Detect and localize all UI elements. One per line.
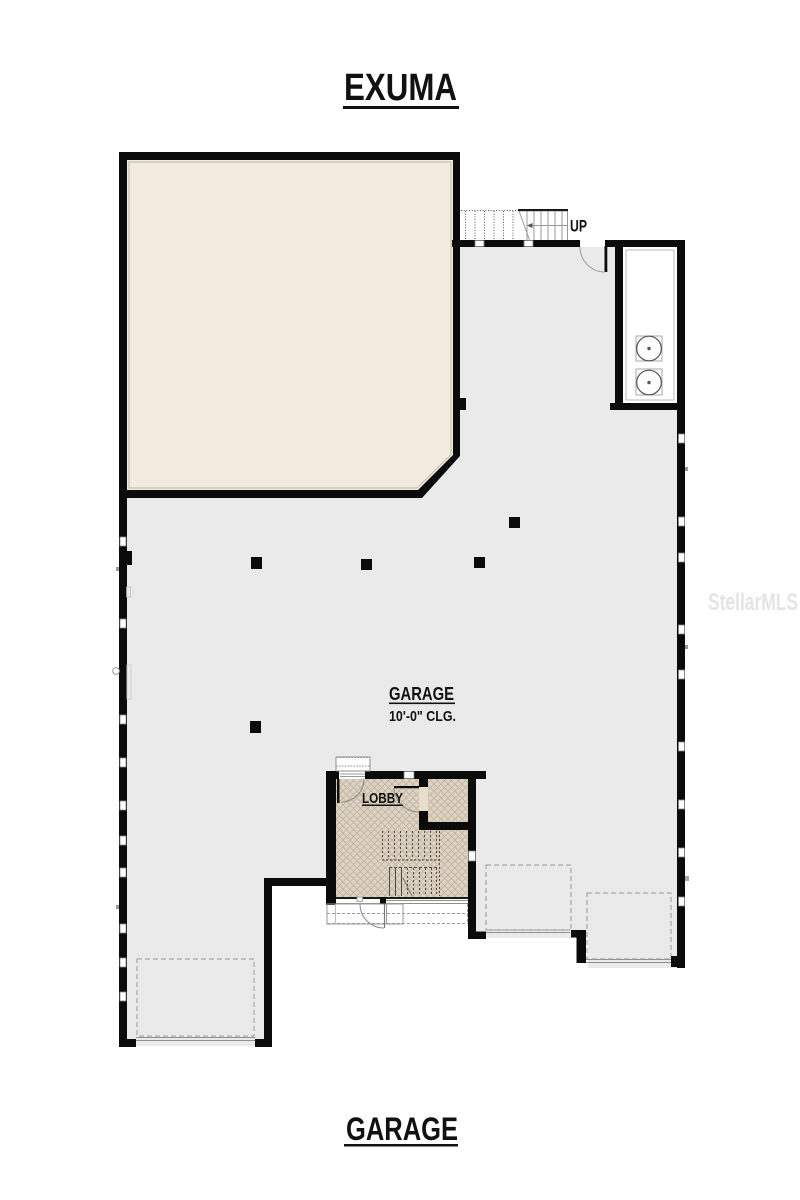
svg-text:StellarMLS: StellarMLS bbox=[708, 589, 798, 616]
svg-text:GARAGE: GARAGE bbox=[389, 683, 454, 704]
svg-text:GARAGE: GARAGE bbox=[346, 1111, 458, 1147]
svg-text:UP: UP bbox=[570, 217, 587, 236]
svg-text:10'-0" CLG.: 10'-0" CLG. bbox=[389, 708, 456, 725]
svg-text:EXUMA: EXUMA bbox=[344, 67, 457, 109]
